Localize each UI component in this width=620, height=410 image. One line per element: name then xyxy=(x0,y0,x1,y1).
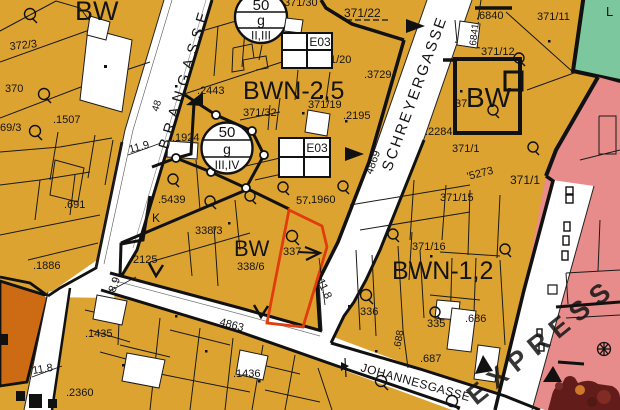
svg-text:335: 335 xyxy=(427,318,445,330)
svg-text:.2443: .2443 xyxy=(197,85,225,97)
svg-text:E03: E03 xyxy=(306,141,328,155)
svg-text:371/1: 371/1 xyxy=(452,143,480,155)
svg-text:.1436: .1436 xyxy=(233,368,261,380)
svg-text:371/11: 371/11 xyxy=(537,11,570,23)
svg-text:.2360: .2360 xyxy=(66,387,94,399)
svg-text:.2284: .2284 xyxy=(425,126,453,138)
svg-text:338/3: 338/3 xyxy=(195,225,223,237)
svg-text:III,IV: III,IV xyxy=(215,158,240,172)
svg-text:.687: .687 xyxy=(420,353,441,365)
svg-text:2125: 2125 xyxy=(133,254,157,266)
svg-text:.5439: .5439 xyxy=(158,194,186,206)
svg-text:.686: .686 xyxy=(465,313,486,325)
svg-text:371/19: 371/19 xyxy=(308,99,342,111)
svg-text:.1924: .1924 xyxy=(172,132,200,144)
svg-text:.1507: .1507 xyxy=(53,114,81,126)
svg-text:371/22: 371/22 xyxy=(344,6,381,20)
svg-text:g: g xyxy=(257,12,265,28)
svg-text:69/3: 69/3 xyxy=(0,122,21,134)
svg-text:.1960: .1960 xyxy=(308,194,336,206)
svg-text:BW: BW xyxy=(75,0,119,26)
svg-text:BW: BW xyxy=(234,236,270,261)
svg-text:371/12: 371/12 xyxy=(481,46,515,58)
svg-text:.3729: .3729 xyxy=(364,69,392,81)
svg-text:.6840: .6840 xyxy=(476,10,504,22)
svg-text:.1886: .1886 xyxy=(33,260,61,272)
svg-text:L: L xyxy=(606,4,613,19)
svg-text:1/20: 1/20 xyxy=(330,54,351,66)
svg-text:E03: E03 xyxy=(309,35,331,49)
svg-text:37: 37 xyxy=(455,98,467,110)
svg-text:371/32: 371/32 xyxy=(243,107,277,119)
svg-text:.691: .691 xyxy=(64,199,85,211)
svg-text:371/15: 371/15 xyxy=(440,192,474,204)
svg-text:K: K xyxy=(152,211,160,225)
svg-text:337: 337 xyxy=(283,246,301,258)
svg-text:371/16: 371/16 xyxy=(412,241,446,253)
svg-text:338/6: 338/6 xyxy=(237,261,265,273)
svg-text:336: 336 xyxy=(360,306,378,318)
svg-text:.1435: .1435 xyxy=(85,328,113,340)
svg-text:BWN-1,2: BWN-1,2 xyxy=(392,257,493,285)
svg-text:370: 370 xyxy=(5,83,23,95)
svg-text:371/30: 371/30 xyxy=(284,0,318,9)
svg-text:50: 50 xyxy=(219,124,236,141)
svg-text:II,III: II,III xyxy=(251,29,271,43)
svg-text:371/1: 371/1 xyxy=(510,173,540,187)
svg-text:g: g xyxy=(223,141,231,157)
